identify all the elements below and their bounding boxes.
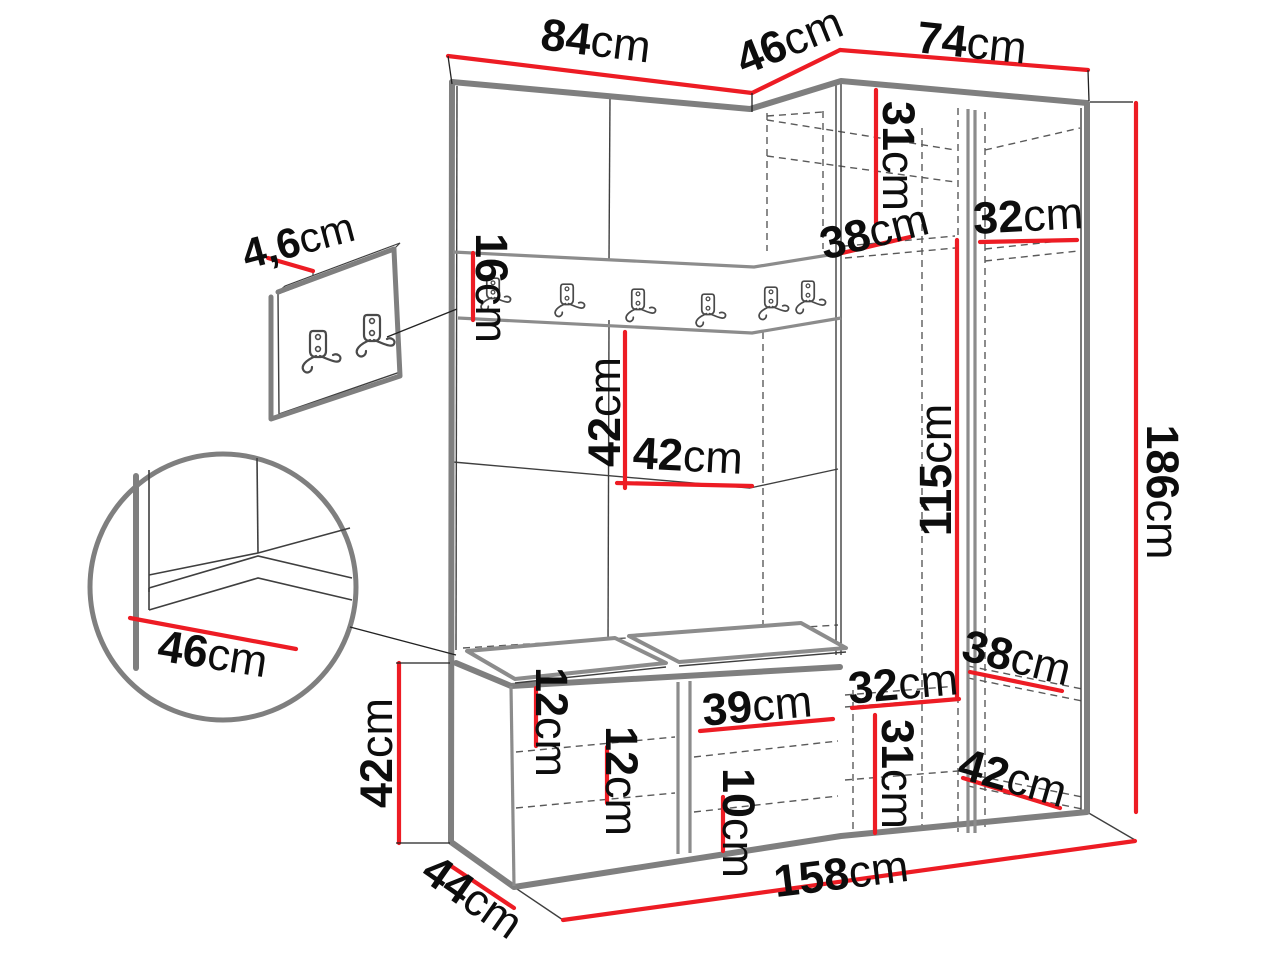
dim-16cm: 16cm — [467, 233, 518, 343]
dim-42cm-bottom-right: 42cm — [953, 737, 1073, 816]
diagram-canvas: 84cm 46cm 74cm 31cm 38cm 32cm 16cm 42cm … — [0, 0, 1280, 960]
dim-32cm-top: 32cm — [972, 187, 1085, 244]
dim-42cm-mid-horizontal: 42cm — [632, 427, 745, 484]
coat-hook-icon — [555, 284, 584, 316]
dim-32cm-bottom: 32cm — [846, 653, 960, 713]
hook-panel-detail — [271, 243, 457, 419]
dim-10cm: 10cm — [714, 768, 765, 878]
dim-12cm-a: 12cm — [527, 667, 578, 777]
dim-38cm-top: 38cm — [814, 193, 933, 269]
dimension-labels: 84cm 46cm 74cm 31cm 38cm 32cm 16cm 42cm … — [155, 0, 1189, 948]
dim-42cm-mid-vertical: 42cm — [579, 357, 630, 467]
coat-hook-icon — [796, 281, 825, 313]
callout-line — [350, 627, 456, 655]
dim-158cm: 158cm — [771, 839, 911, 906]
coat-hook-icon — [626, 289, 655, 321]
dim-186cm: 186cm — [1138, 424, 1189, 559]
dim-12cm-b: 12cm — [597, 726, 648, 836]
coat-hook-icon — [696, 294, 725, 326]
dim-115cm: 115cm — [910, 404, 961, 537]
dimension-diagram: 84cm 46cm 74cm 31cm 38cm 32cm 16cm 42cm … — [0, 0, 1280, 960]
bench-cushions — [467, 623, 846, 683]
coat-hook-strip — [481, 278, 825, 326]
dim-46cm-top: 46cm — [728, 0, 849, 84]
dim-42cm-left: 42cm — [351, 698, 402, 808]
coat-hook-icon — [759, 287, 788, 319]
dim-39cm: 39cm — [700, 675, 814, 735]
dim-84cm: 84cm — [538, 8, 653, 72]
dim-74cm: 74cm — [915, 11, 1030, 73]
dim-31cm-bottom: 31cm — [873, 719, 924, 829]
